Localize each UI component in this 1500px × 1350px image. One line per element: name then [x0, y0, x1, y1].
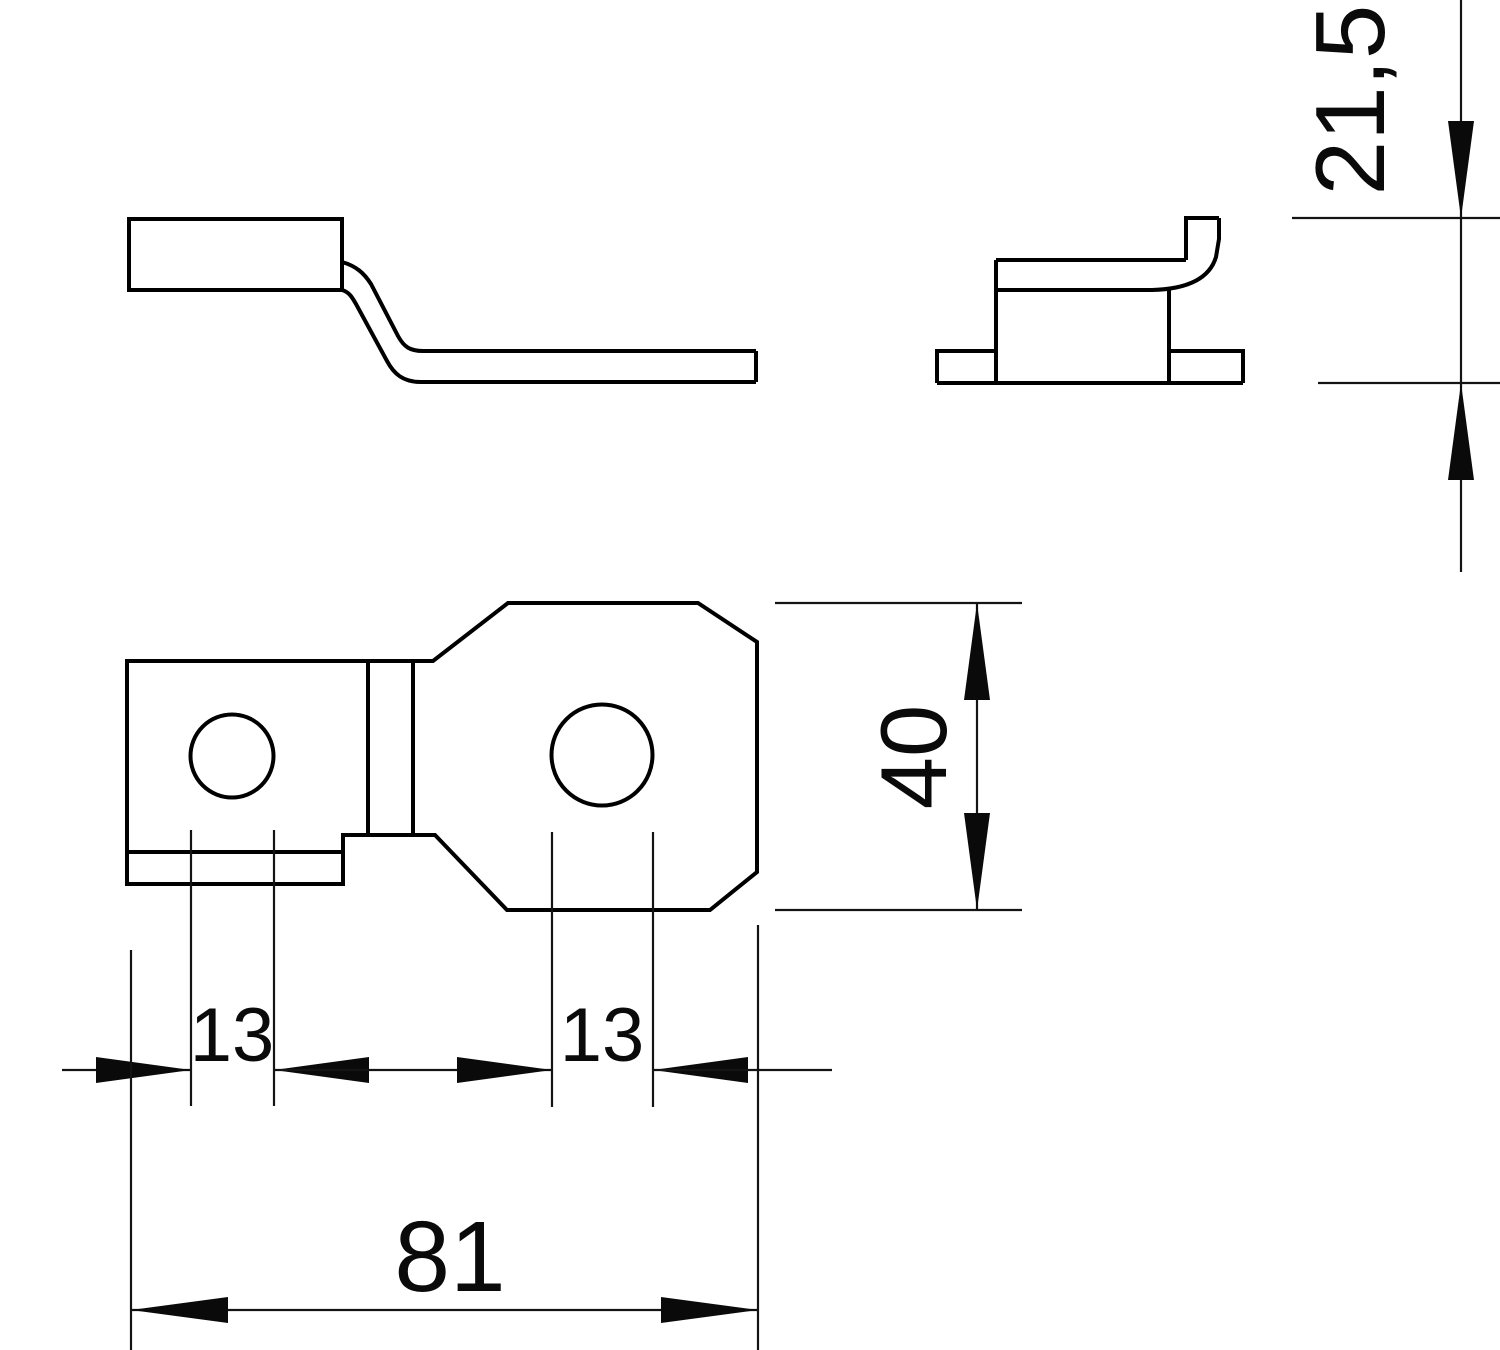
technical-drawing-page: 21,5 40 13 13 81 — [0, 0, 1500, 1350]
end-view — [937, 218, 1243, 383]
overall-length-dimension-label: 81 — [394, 1201, 505, 1313]
end-view-base-left — [937, 351, 996, 383]
hole-right-dimension-label: 13 — [560, 993, 645, 1078]
height-dimension-label: 21,5 — [1295, 5, 1405, 196]
technical-drawing-canvas: 21,5 40 13 13 81 — [0, 0, 1500, 1350]
plan-view-hole-left — [191, 715, 274, 798]
dimension-overall-length-81: 81 — [131, 925, 758, 1350]
plate-width-arrowhead-down — [964, 813, 990, 910]
overall-length-arrowhead-left — [131, 1297, 228, 1323]
side-view-lug-body — [129, 219, 342, 290]
dimension-height-21-5: 21,5 — [1292, 0, 1500, 572]
side-view — [129, 219, 756, 382]
height-arrowhead-down — [1448, 121, 1474, 218]
hole-left-arrowhead-right — [96, 1057, 191, 1083]
plan-view — [127, 603, 757, 910]
side-view-bend-lower-edge — [342, 290, 756, 382]
plan-view-hole-right — [552, 705, 653, 806]
dimension-hole-left-13: 13 — [62, 830, 369, 1106]
plan-view-outline — [127, 603, 757, 910]
side-view-bend-upper-edge — [342, 262, 756, 351]
height-arrowhead-up — [1448, 383, 1474, 480]
end-view-base-right — [1169, 351, 1243, 383]
hole-right-arrowhead-right — [457, 1057, 552, 1083]
dimension-plate-width-40: 40 — [775, 603, 1022, 910]
hole-left-dimension-label: 13 — [190, 993, 275, 1078]
end-view-upturn-inner-edge — [1186, 218, 1219, 260]
overall-length-arrowhead-right — [661, 1297, 758, 1323]
plate-width-dimension-label: 40 — [861, 705, 966, 810]
plate-width-arrowhead-up — [964, 603, 990, 700]
